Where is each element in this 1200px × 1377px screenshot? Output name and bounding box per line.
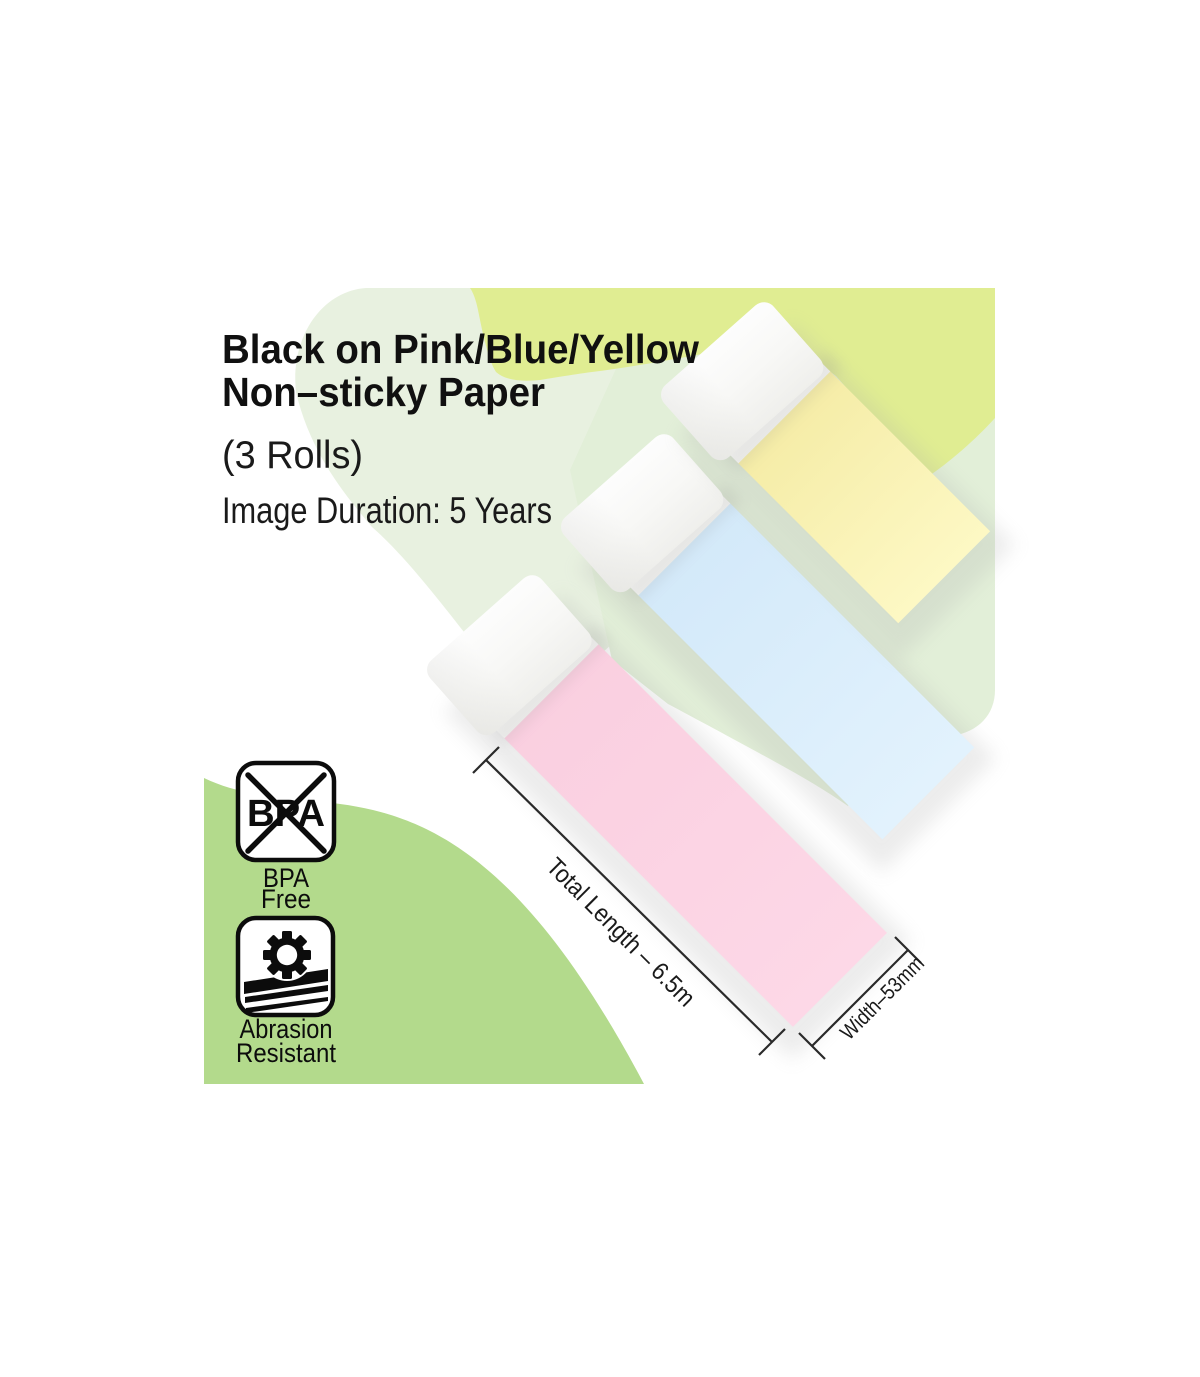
svg-text:Non–sticky Paper: Non–sticky Paper (222, 369, 545, 415)
svg-text:Image Duration: 5 Years: Image Duration: 5 Years (222, 489, 552, 531)
svg-text:Black on Pink/Blue/Yellow: Black on Pink/Blue/Yellow (222, 326, 699, 372)
svg-text:(3 Rolls): (3 Rolls) (222, 434, 363, 477)
svg-text:Resistant: Resistant (236, 1038, 336, 1068)
svg-text:Free: Free (261, 884, 311, 914)
